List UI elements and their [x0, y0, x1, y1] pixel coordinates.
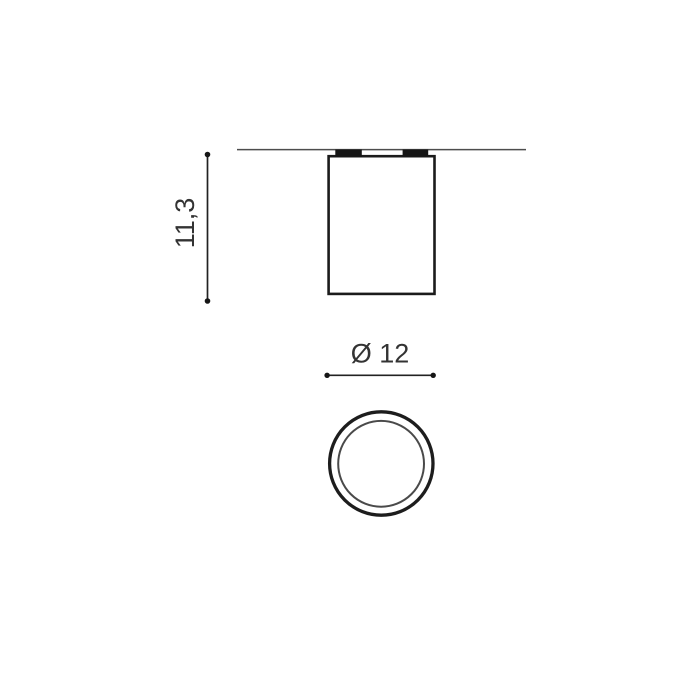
svg-text:Ø 12: Ø 12 [351, 339, 410, 369]
svg-text:11,3: 11,3 [170, 198, 200, 249]
